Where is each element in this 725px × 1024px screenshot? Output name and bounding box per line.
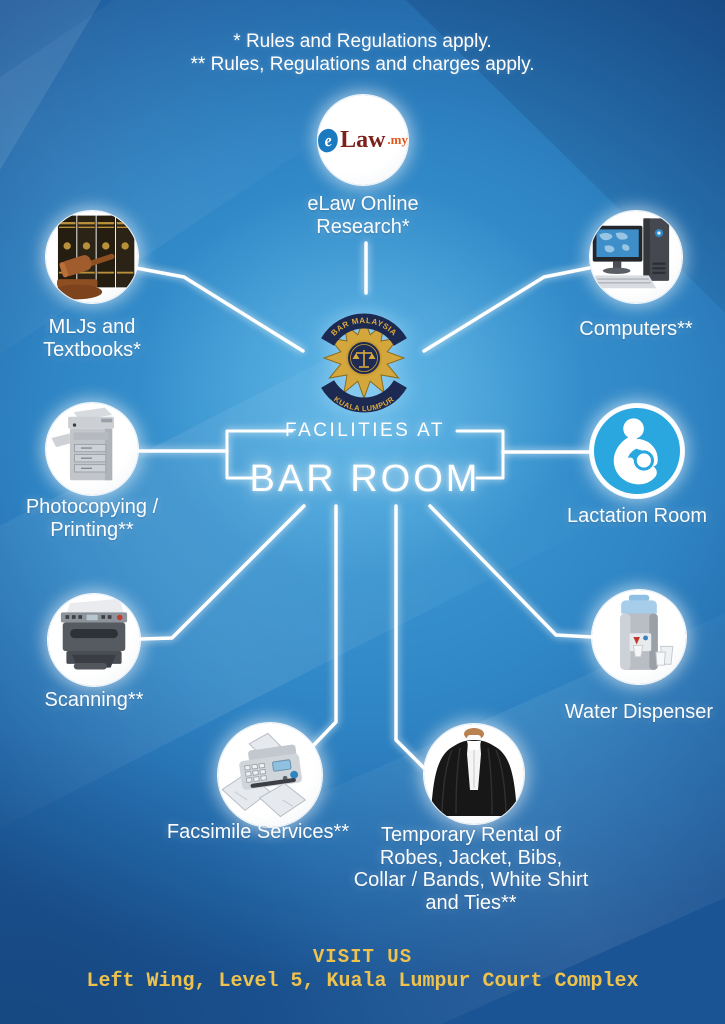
label-facsimile: Facsimile Services** (153, 821, 363, 844)
rules-notes: * Rules and Regulations apply. ** Rules,… (0, 30, 725, 76)
bar-room-facilities-poster: * Rules and Regulations apply. ** Rules,… (0, 0, 725, 1024)
elaw-law-text: Law (340, 127, 385, 154)
bubble-lactation (590, 404, 684, 498)
facilities-at-subtitle: FACILITIES AT (227, 420, 503, 442)
elaw-logo: eLaw.my (318, 95, 408, 185)
label-elaw: eLaw Online Research* (258, 193, 468, 238)
label-mlj: MLJs and Textbooks* (0, 316, 197, 361)
photocopier-icon (46, 403, 138, 495)
bubble-mlj (46, 211, 138, 303)
note-line-2: ** Rules, Regulations and charges apply. (0, 53, 725, 76)
footer-address: Left Wing, Level 5, Kuala Lumpur Court C… (0, 970, 725, 993)
note-line-1: * Rules and Regulations apply. (0, 30, 725, 53)
bubble-computers (590, 211, 682, 303)
barrister-robe-icon (424, 724, 524, 824)
bar-malaysia-badge: BAR MALAYSIA KUALA LUMPUR (314, 306, 414, 416)
bubble-water (592, 590, 686, 684)
law-books-gavel-icon (46, 211, 138, 303)
elaw-e-icon: e (316, 127, 340, 153)
bubble-facsimile (218, 723, 322, 827)
bubble-photocopying (46, 403, 138, 495)
scanner-icon (48, 594, 140, 686)
label-lactation: Lactation Room (532, 505, 725, 528)
label-scanning: Scanning** (0, 689, 199, 712)
footer-visit-us: VISIT US (0, 946, 725, 968)
connector-facsimile (311, 506, 336, 748)
bubble-scanning (48, 594, 140, 686)
breastfeeding-icon (594, 408, 680, 494)
desktop-computer-icon (590, 211, 682, 303)
label-robes: Temporary Rental of Robes, Jacket, Bibs,… (346, 824, 596, 914)
bar-room-title: BAR ROOM (217, 458, 513, 501)
bubble-robes (424, 724, 524, 824)
elaw-my-text: .my (387, 132, 408, 148)
fax-machine-icon (218, 723, 322, 827)
label-computers: Computers** (531, 318, 725, 341)
label-photocopying: Photocopying / Printing** (0, 496, 197, 541)
connector-robes (396, 506, 424, 768)
label-water: Water Dispenser (534, 701, 725, 724)
water-dispenser-icon (592, 590, 686, 684)
